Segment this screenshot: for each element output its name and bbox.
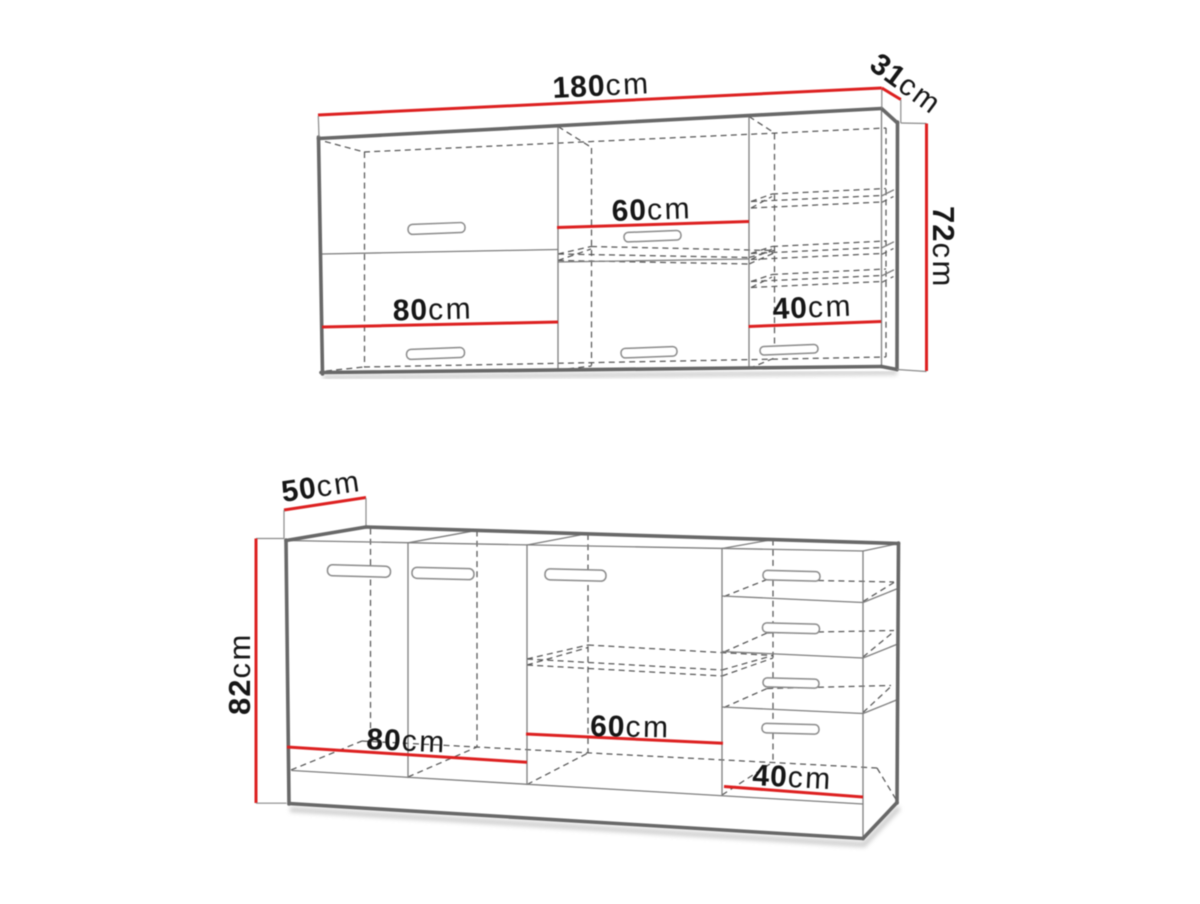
svg-text:40cm: 40cm	[752, 759, 834, 796]
svg-text:80cm: 80cm	[392, 292, 473, 327]
svg-text:60cm: 60cm	[590, 710, 671, 744]
svg-text:40cm: 40cm	[772, 290, 854, 326]
svg-text:80cm: 80cm	[366, 723, 448, 759]
svg-text:72cm: 72cm	[926, 206, 961, 289]
svg-text:180cm: 180cm	[552, 67, 652, 105]
svg-text:82cm: 82cm	[222, 632, 257, 715]
svg-text:60cm: 60cm	[611, 192, 692, 228]
